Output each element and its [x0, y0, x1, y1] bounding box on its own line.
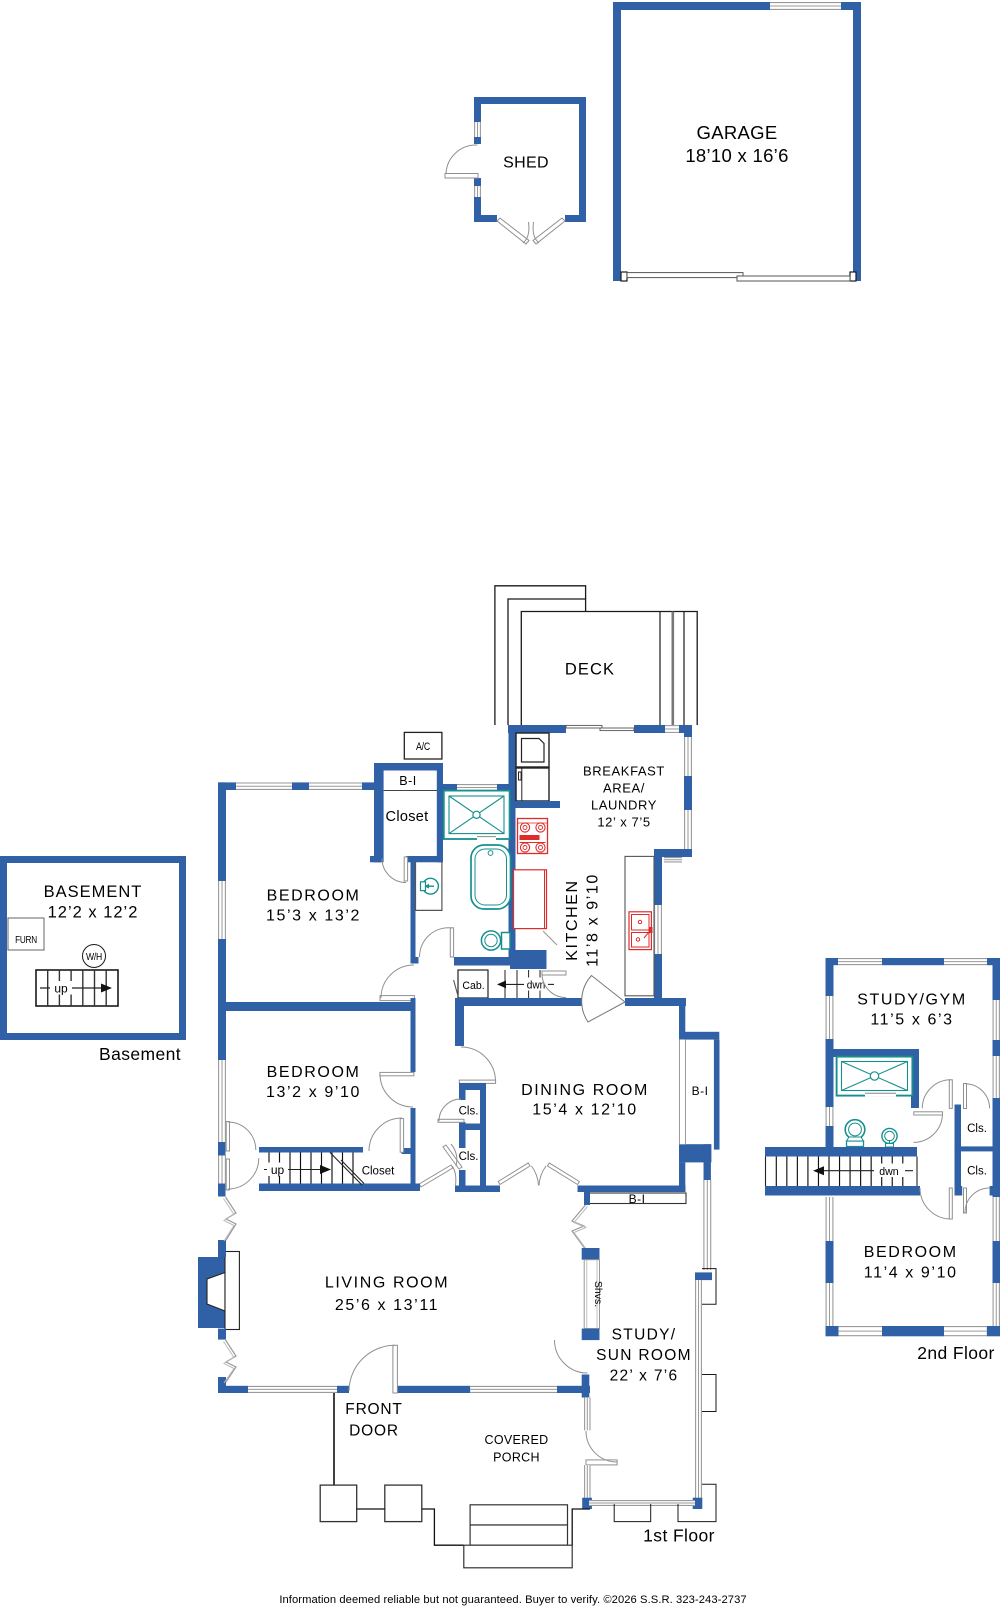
svg-text:KITCHEN: KITCHEN [564, 879, 581, 960]
svg-text:Closet: Closet [386, 809, 429, 825]
svg-text:dwn: dwn [527, 979, 546, 991]
svg-text:DINING ROOM: DINING ROOM [521, 1082, 649, 1099]
svg-text:Cls.: Cls. [967, 1123, 987, 1135]
svg-text:2nd Floor: 2nd Floor [917, 1343, 995, 1363]
svg-text:DOOR: DOOR [349, 1422, 399, 1439]
svg-text:dwn: dwn [879, 1166, 898, 1178]
svg-text:B-I: B-I [399, 774, 416, 788]
svg-text:SHED: SHED [503, 155, 549, 172]
svg-text:15’4 x 12’10: 15’4 x 12’10 [532, 1102, 638, 1119]
svg-text:Information deemed reliable bu: Information deemed reliable but not guar… [279, 1594, 746, 1606]
svg-text:up: up [54, 982, 68, 996]
svg-text:GARAGE: GARAGE [697, 122, 778, 143]
svg-text:BEDROOM: BEDROOM [864, 1244, 958, 1261]
svg-text:B-I: B-I [692, 1084, 709, 1098]
svg-text:A/C: A/C [416, 741, 430, 753]
svg-text:FURN: FURN [15, 933, 37, 945]
svg-text:1st Floor: 1st Floor [643, 1526, 715, 1546]
svg-text:AREA/: AREA/ [603, 781, 645, 796]
svg-text:25’6 x 13’11: 25’6 x 13’11 [335, 1297, 439, 1314]
svg-text:BEDROOM: BEDROOM [267, 1064, 361, 1081]
svg-text:LAUNDRY: LAUNDRY [591, 798, 657, 813]
svg-text:Cab.: Cab. [462, 980, 484, 992]
svg-text:PORCH: PORCH [493, 1451, 540, 1465]
svg-text:Cls.: Cls. [459, 1151, 479, 1163]
svg-text:11’4 x 9’10: 11’4 x 9’10 [864, 1265, 958, 1282]
svg-text:18’10 x 16’6: 18’10 x 16’6 [685, 145, 788, 166]
svg-text:Basement: Basement [99, 1044, 181, 1064]
svg-text:Shvs.: Shvs. [592, 1281, 604, 1307]
svg-text:13’2 x 9’10: 13’2 x 9’10 [266, 1084, 361, 1101]
svg-text:SUN ROOM: SUN ROOM [596, 1347, 692, 1364]
svg-text:11’8 x 9’10: 11’8 x 9’10 [585, 873, 602, 967]
svg-text:12’ x 7’5: 12’ x 7’5 [597, 815, 650, 830]
svg-text:LIVING ROOM: LIVING ROOM [325, 1274, 449, 1291]
svg-text:STUDY/GYM: STUDY/GYM [857, 992, 967, 1009]
svg-text:Closet: Closet [362, 1166, 395, 1178]
svg-text:15’3 x 13’2: 15’3 x 13’2 [266, 907, 361, 924]
svg-text:FRONT: FRONT [345, 1401, 402, 1418]
svg-text:COVERED: COVERED [485, 1433, 549, 1447]
svg-text:BREAKFAST: BREAKFAST [583, 764, 665, 779]
svg-text:DECK: DECK [565, 661, 615, 679]
svg-text:B-I: B-I [629, 1192, 646, 1206]
svg-text:Cls.: Cls. [967, 1166, 987, 1178]
svg-text:12’2 x 12’2: 12’2 x 12’2 [48, 904, 139, 922]
svg-text:BASEMENT: BASEMENT [44, 883, 143, 901]
svg-text:up: up [271, 1163, 285, 1177]
svg-text:BEDROOM: BEDROOM [267, 888, 361, 905]
svg-text:11’5 x 6’3: 11’5 x 6’3 [870, 1011, 953, 1028]
svg-text:22’ x 7’6: 22’ x 7’6 [610, 1367, 679, 1384]
svg-text:W/H: W/H [86, 951, 102, 963]
svg-text:Cls.: Cls. [459, 1106, 479, 1118]
svg-text:STUDY/: STUDY/ [612, 1327, 677, 1344]
